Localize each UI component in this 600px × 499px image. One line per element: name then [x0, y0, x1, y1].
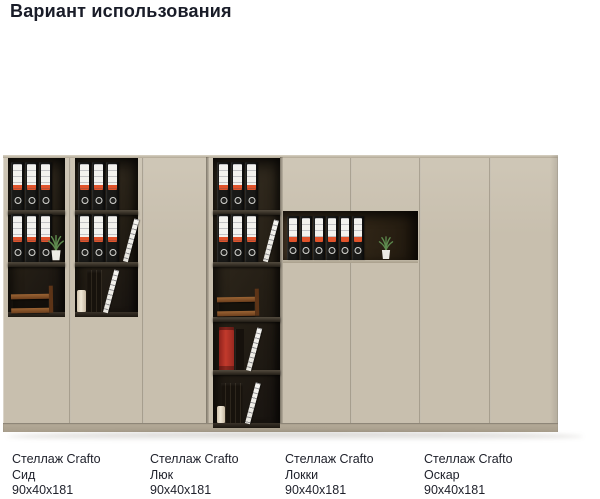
door-seam [142, 158, 144, 423]
door-seam [489, 158, 491, 423]
binder [245, 162, 258, 210]
door-seam [350, 158, 352, 423]
product-dimensions: 90x40x181 [424, 483, 559, 499]
binder [11, 214, 24, 262]
binder [313, 216, 325, 260]
binder [92, 162, 105, 210]
product-name: Люк [150, 468, 285, 484]
book-group [219, 326, 263, 370]
product-series: Стеллаж Crafto [285, 452, 420, 468]
binder [25, 214, 38, 262]
door-seam [419, 158, 421, 423]
product-name: Сид [12, 468, 147, 484]
product-dimensions: 90x40x181 [12, 483, 147, 499]
binder [106, 162, 119, 210]
binder [287, 216, 299, 260]
binder [39, 162, 52, 210]
binder [245, 214, 258, 262]
door-seam [69, 158, 71, 423]
product-label-sid: Стеллаж Crafto Сид 90x40x181 [12, 452, 147, 499]
furniture-scene [3, 155, 558, 432]
product-name: Оскар [424, 468, 559, 484]
floor-shadow [7, 432, 583, 441]
binder [217, 214, 230, 262]
shelf [213, 317, 280, 322]
book-group [217, 381, 265, 423]
product-series: Стеллаж Crafto [12, 452, 147, 468]
product-series: Стеллаж Crafto [424, 452, 559, 468]
wooden-letter-tray [217, 286, 260, 318]
product-label-lokki: Стеллаж Crafto Локки 90x40x181 [285, 452, 420, 499]
binder [106, 214, 119, 262]
binder [231, 214, 244, 262]
binder [352, 216, 364, 260]
niche-sill [283, 260, 418, 263]
binder [25, 162, 38, 210]
shelf [213, 262, 280, 267]
product-series: Стеллаж Crafto [150, 452, 285, 468]
binder [217, 162, 230, 210]
binder [78, 214, 91, 262]
right-edge-shade [550, 155, 558, 423]
shelf [213, 423, 280, 428]
unit-gap [206, 157, 209, 423]
binder [339, 216, 351, 260]
plant-icon [46, 233, 66, 267]
page-title: Вариант использования [10, 1, 232, 22]
unit-gap [280, 157, 283, 423]
product-usage-page: Вариант использования [0, 0, 600, 498]
book-group [77, 267, 121, 312]
binder [78, 162, 91, 210]
plant-icon [377, 234, 395, 266]
product-label-oskar: Стеллаж Crafto Оскар 90x40x181 [424, 452, 559, 499]
shelf [213, 370, 280, 375]
product-label-luk: Стеллаж Crafto Люк 90x40x181 [150, 452, 285, 499]
binder [231, 162, 244, 210]
binder [92, 214, 105, 262]
binder [11, 162, 24, 210]
product-dimensions: 90x40x181 [285, 483, 420, 499]
wooden-letter-tray [11, 283, 54, 315]
binder [326, 216, 338, 260]
product-dimensions: 90x40x181 [150, 483, 285, 499]
cabinet-plinth [3, 423, 558, 432]
binder [300, 216, 312, 260]
product-name: Локки [285, 468, 420, 484]
